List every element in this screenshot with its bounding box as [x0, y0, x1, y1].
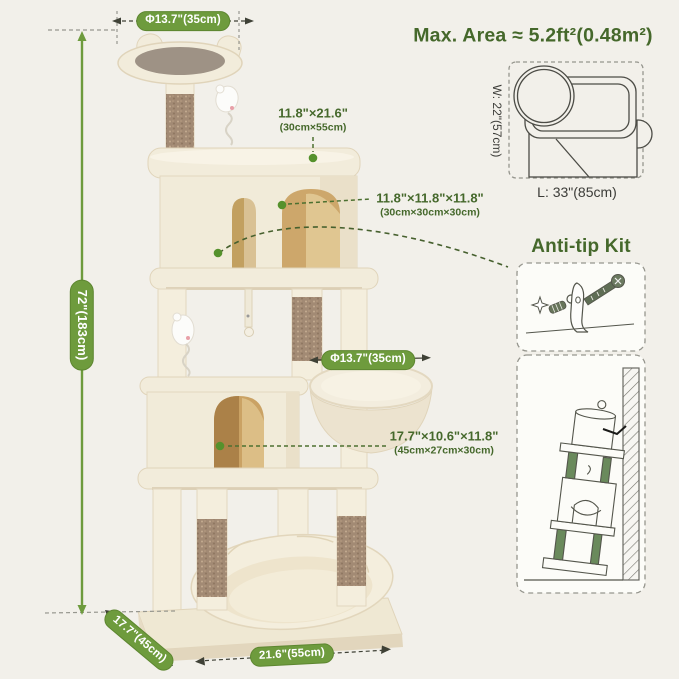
footprint-diagram — [509, 62, 652, 178]
top-platform-size-cm: (30cm×55cm) — [278, 122, 348, 135]
top-diameter-pill: Φ13.7"(35cm) — [136, 11, 230, 31]
hammock-diameter-pill: Φ13.7"(35cm) — [321, 350, 415, 370]
top-perch — [118, 31, 244, 84]
upper-condo-size-cm: (30cm×30cm×30cm) — [376, 207, 483, 220]
scratching-post-top — [166, 94, 194, 148]
lower-condo-size-label: 17.7"×10.6"×11.8" (45cm×27cm×30cm) — [390, 428, 499, 457]
height-pill: 72"(183cm) — [70, 280, 94, 371]
upper-condo — [160, 176, 357, 274]
mouse-toy-top — [213, 84, 241, 145]
lower-condo-size-inches: 17.7"×10.6"×11.8" — [390, 428, 499, 444]
max-area-title: Max. Area ≈ 5.2ft²(0.48m²) — [413, 25, 653, 48]
top-platform-size-inches: 11.8"×21.6" — [278, 105, 348, 121]
upper-condo-size-inches: 11.8"×11.8"×11.8" — [376, 190, 483, 206]
upper-condo-size-label: 11.8"×11.8"×11.8" (30cm×30cm×30cm) — [376, 190, 483, 219]
lower-condo-size-cm: (45cm×27cm×30cm) — [390, 445, 499, 458]
anti-tip-panels — [517, 263, 645, 593]
lower-condo — [140, 377, 308, 470]
footprint-width-label: W: 22"(57cm) — [490, 85, 504, 158]
anti-tip-kit-title: Anti-tip Kit — [531, 236, 630, 258]
cat-tree-illustration — [118, 31, 432, 662]
footprint-length-label: L: 33"(85cm) — [537, 184, 617, 200]
product-dimension-diagram: Max. Area ≈ 5.2ft²(0.48m²) Φ13.7"(35cm) … — [0, 0, 679, 679]
scene-artwork — [0, 0, 679, 679]
top-platform-size-label: 11.8"×21.6" (30cm×55cm) — [278, 105, 348, 134]
hanging-ball-toy — [245, 289, 254, 337]
